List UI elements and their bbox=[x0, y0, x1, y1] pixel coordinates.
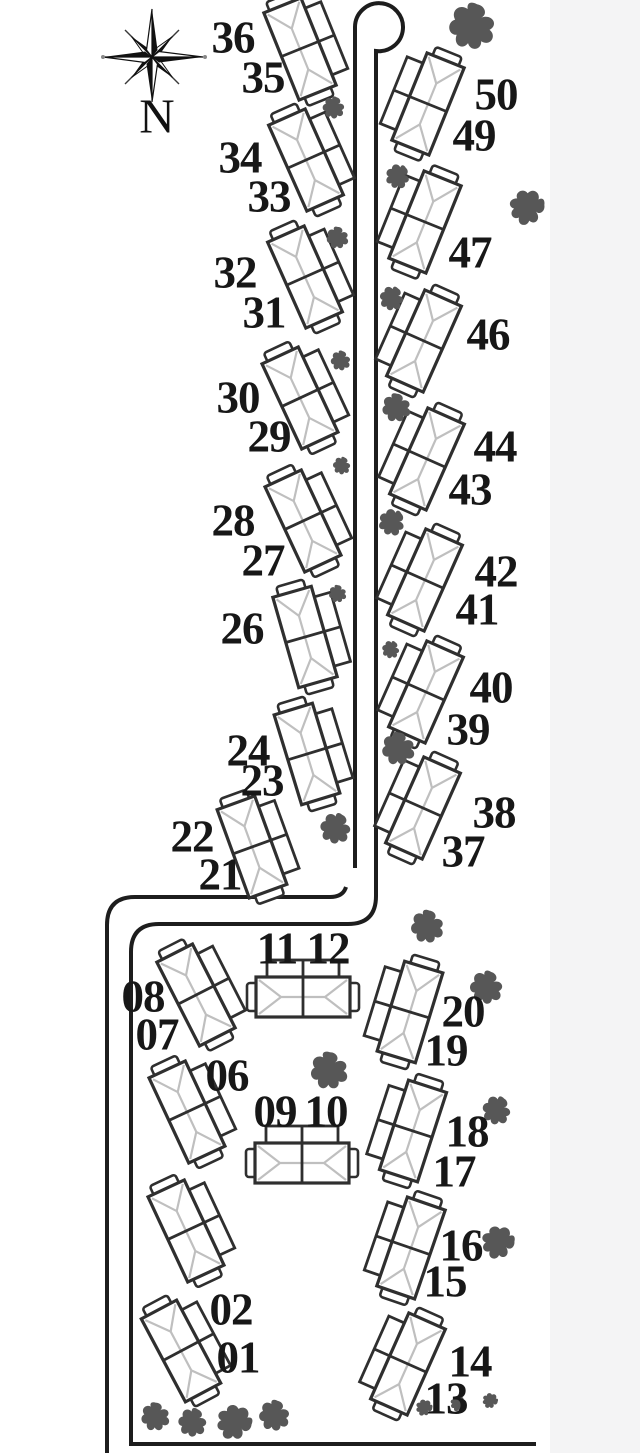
building-31-32 bbox=[264, 211, 362, 337]
building-29-30 bbox=[258, 332, 357, 458]
building-37-38 bbox=[366, 742, 464, 868]
building-35-36 bbox=[260, 0, 355, 108]
building-17-18 bbox=[361, 1066, 450, 1190]
building-07-08 bbox=[153, 928, 255, 1054]
buildings-layer bbox=[137, 0, 468, 1423]
tree-icon bbox=[410, 909, 445, 944]
tree-icon bbox=[311, 1052, 347, 1089]
tree-icon bbox=[481, 1225, 516, 1260]
building-47 bbox=[370, 156, 465, 281]
site-map-drawing bbox=[0, 0, 640, 1453]
tree-icon bbox=[482, 1393, 498, 1409]
building-27-28 bbox=[261, 455, 360, 581]
tree-icon bbox=[257, 1398, 292, 1433]
building-21-22 bbox=[214, 782, 306, 907]
tree-icon bbox=[216, 1404, 253, 1441]
tree-icon bbox=[379, 638, 402, 661]
building-15-16 bbox=[358, 1183, 448, 1307]
building-13-14 bbox=[351, 1298, 449, 1424]
building-49-50 bbox=[373, 38, 468, 163]
compass-cardinal-points bbox=[103, 9, 203, 102]
site-map: N 36353433323130292827262423222150494746… bbox=[0, 0, 640, 1453]
tree-icon bbox=[175, 1404, 211, 1440]
tree-icon bbox=[329, 349, 351, 371]
compass-rose-icon bbox=[101, 9, 207, 102]
building-23-24 bbox=[272, 690, 359, 814]
building-41-42 bbox=[368, 514, 466, 640]
building-01-02 bbox=[137, 1284, 240, 1410]
tree-icon bbox=[331, 454, 353, 476]
tree-icon bbox=[478, 1091, 516, 1129]
tree-icon bbox=[467, 967, 506, 1007]
tree-icon bbox=[141, 1402, 169, 1430]
building-unlabeled bbox=[144, 1165, 243, 1291]
building-06 bbox=[145, 1046, 244, 1172]
tree-icon bbox=[416, 1400, 432, 1416]
building-33-34 bbox=[265, 94, 363, 220]
tree-icon bbox=[508, 187, 548, 227]
tree-icon bbox=[316, 808, 356, 848]
tree-icon bbox=[446, 0, 498, 52]
building-11-12 bbox=[247, 960, 359, 1017]
tree-icon bbox=[450, 1396, 466, 1412]
building-19-20 bbox=[358, 948, 445, 1072]
building-09-10 bbox=[246, 1126, 358, 1183]
building-39-40 bbox=[369, 626, 467, 752]
